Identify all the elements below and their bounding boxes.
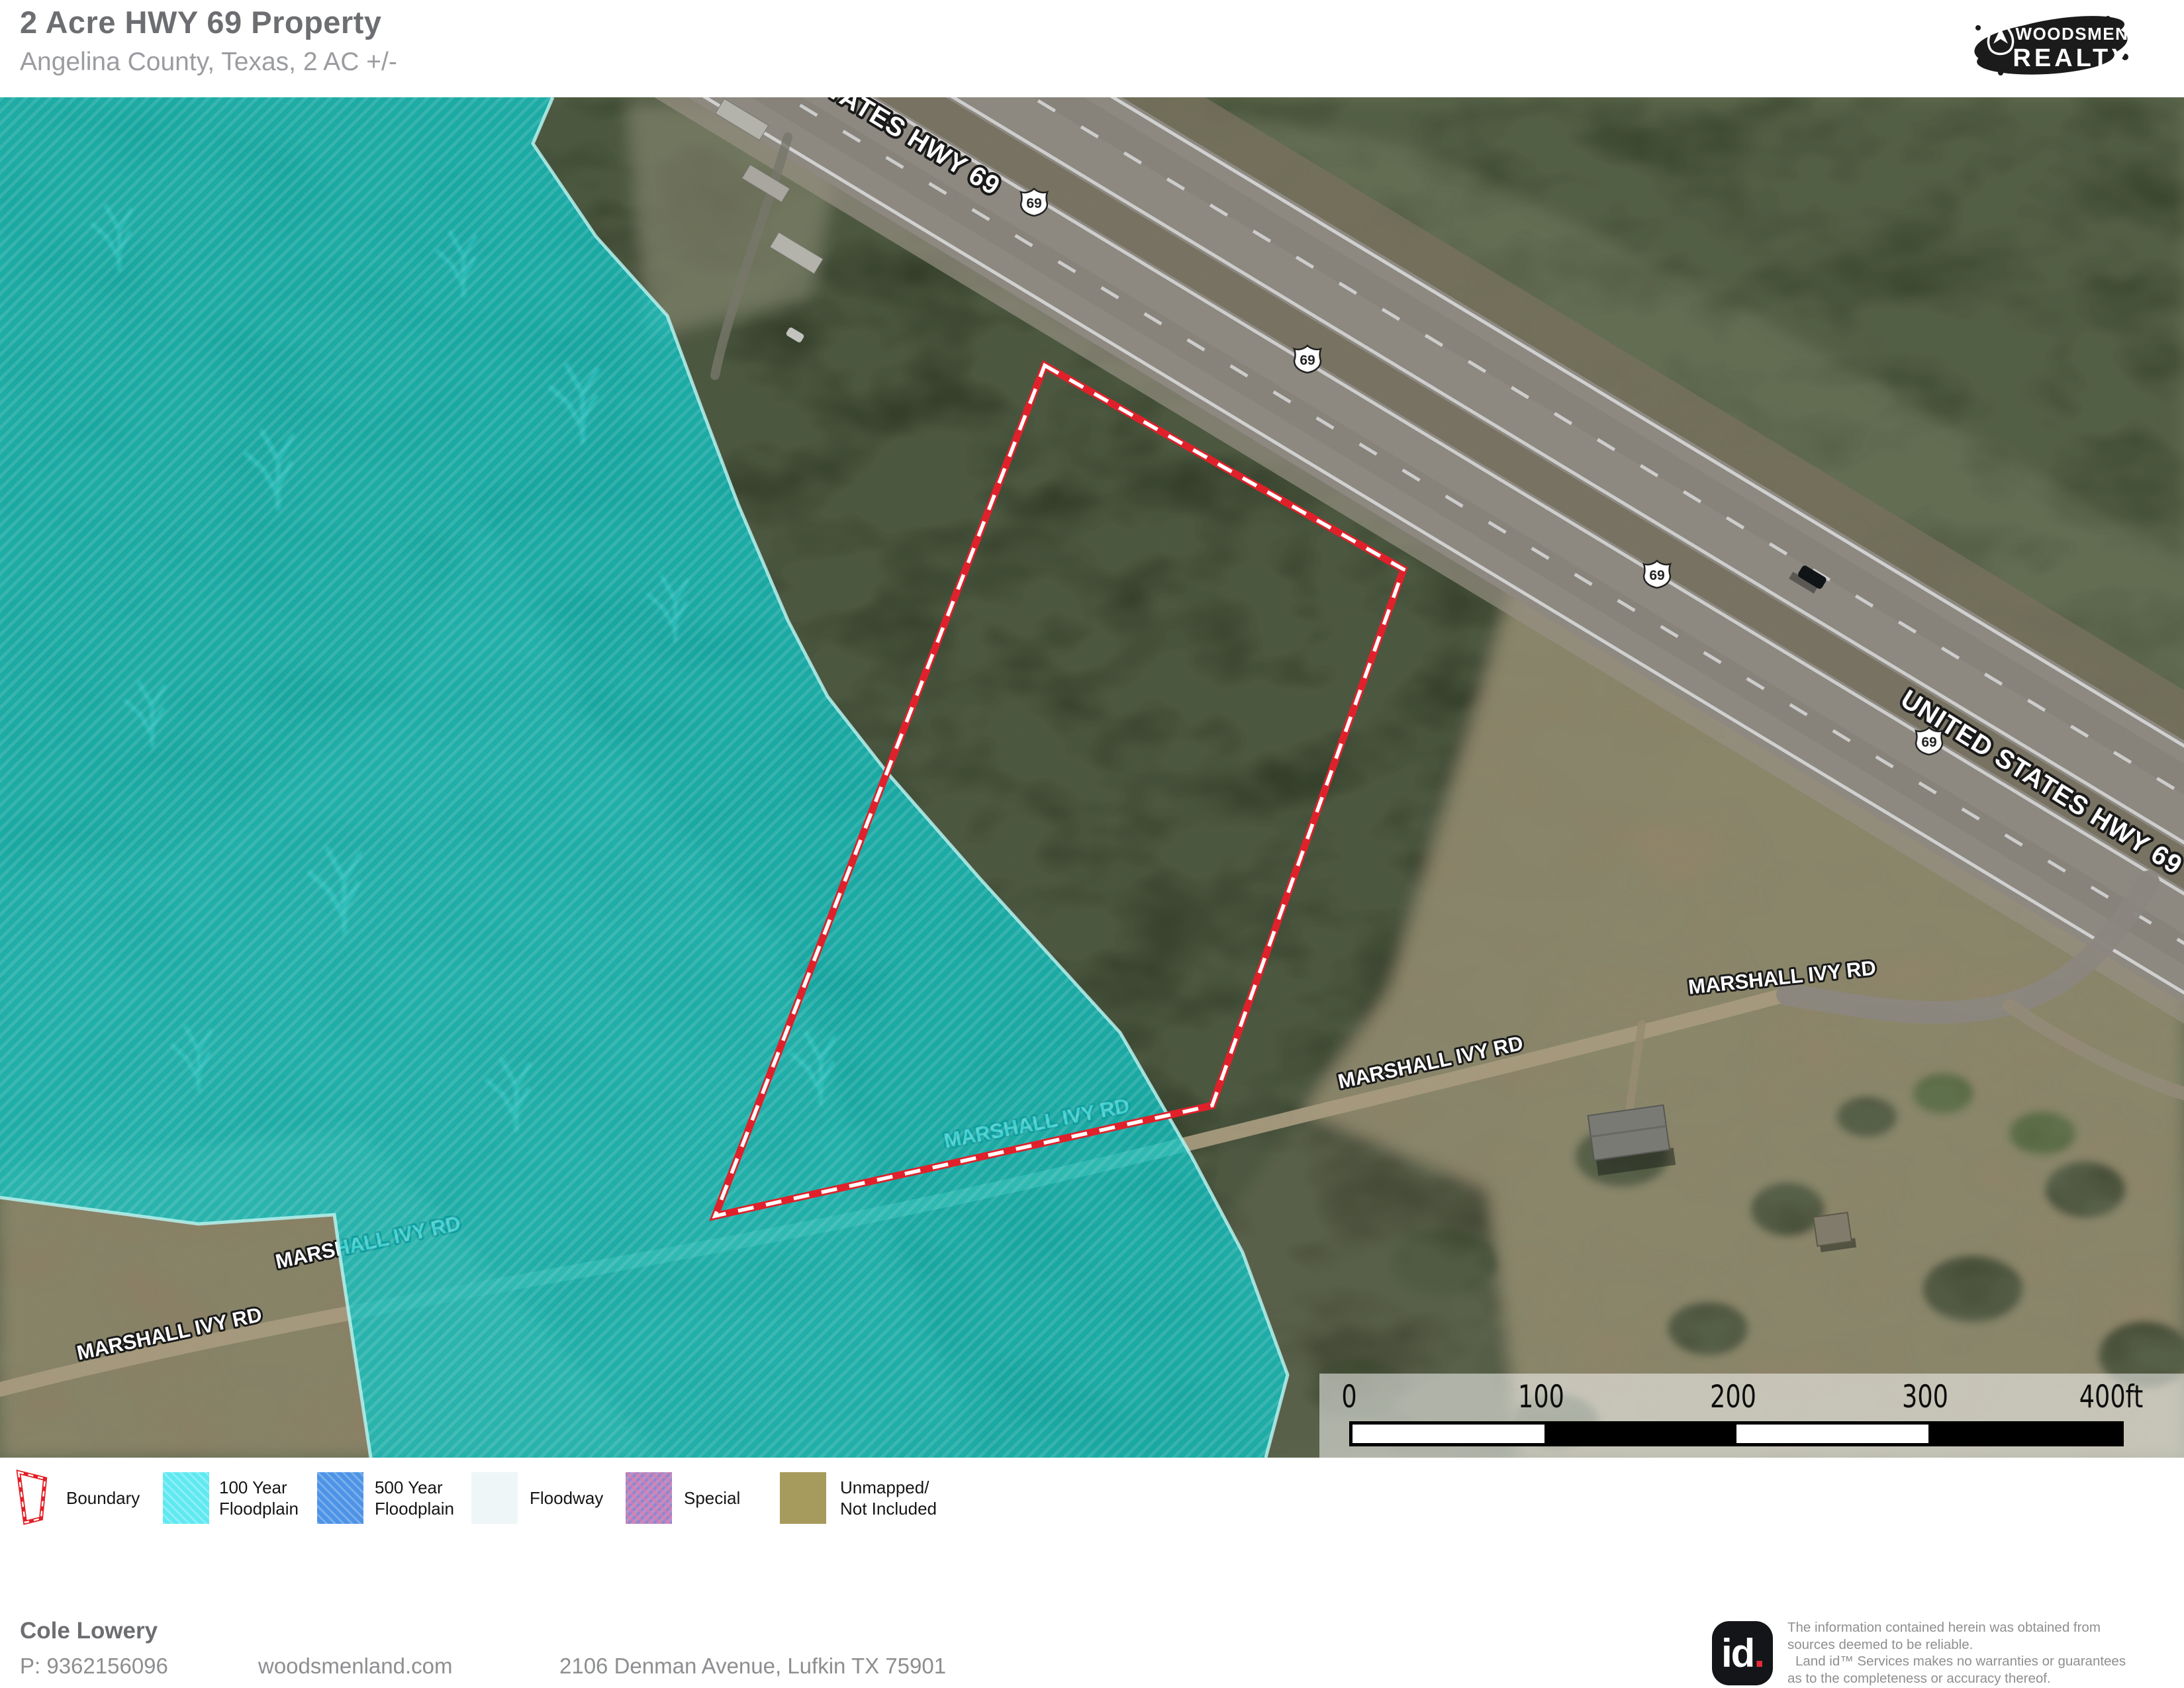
scale-bar: 0 100 200 300 400ft [1319,1374,2184,1458]
scale-tick: 300 [1902,1379,1948,1415]
scale-tick: 100 [1518,1379,1564,1415]
agent-website: woodsmenland.com [258,1654,453,1679]
legend-label: 100 Year Floodplain [219,1468,299,1528]
scale-tick: 200 [1710,1379,1756,1415]
svg-text:69: 69 [1300,353,1315,368]
scale-bar-segments [1349,1421,2124,1446]
svg-text:69: 69 [1921,735,1936,750]
agent-address: 2106 Denman Avenue, Lufkin TX 75901 [559,1654,946,1679]
svg-text:69: 69 [1026,196,1041,211]
logo-dot: . [1754,1630,1764,1676]
agent-name: Cole Lowery [20,1618,158,1644]
map-canvas[interactable]: UNITED STATES HWY 69 UNITED STATES HWY 6… [0,97,2184,1458]
route-shield-69: 69 [1916,727,1942,755]
scale-segment [1353,1425,1544,1443]
legend-swatch-floodway [471,1472,518,1524]
scale-segment [1736,1425,1928,1443]
legend-swatch-special [626,1472,672,1524]
scale-end-label: 400ft [2079,1379,2144,1415]
legend-swatch-unmapped [780,1472,826,1524]
scale-segment [1928,1425,2120,1443]
woodsmen-realty-logo: WOODSMEN REALTY [1971,5,2133,86]
disclaimer-line: The information contained herein was obt… [1787,1619,2184,1636]
boundary-icon [13,1468,52,1528]
legend-label: Boundary [66,1468,140,1528]
legend-item-boundary [13,1468,52,1531]
legend-label: Special [684,1468,740,1528]
legend: Boundary 100 Year Floodplain 500 Year Fl… [0,1468,2184,1541]
legend-swatch-500yr [317,1472,363,1524]
brand-splash-icon: WOODSMEN REALTY [1971,5,2133,86]
disclaimer-line: Land id™ Services makes no warranties or… [1787,1653,2184,1670]
aerial-map: UNITED STATES HWY 69 UNITED STATES HWY 6… [0,97,2184,1458]
brand-name-top: WOODSMEN [2016,24,2129,44]
route-shield-69: 69 [1021,189,1047,216]
legend-label: Floodway [530,1468,603,1528]
disclaimer-line: as to the completeness or accuracy there… [1787,1670,2184,1687]
page-subtitle: Angelina County, Texas, 2 AC +/- [20,48,397,77]
route-shield-69: 69 [1644,561,1670,588]
scale-segment [1544,1425,1736,1443]
land-id-logo: id. [1712,1621,1773,1685]
brand-name-bottom: REALTY [2013,44,2131,72]
legend-swatch-100yr [163,1472,209,1524]
route-shield-69: 69 [1294,346,1321,373]
scale-tick: 0 [1341,1379,1356,1415]
disclaimer-line: sources deemed to be reliable. [1787,1636,2184,1654]
disclaimer: The information contained herein was obt… [1787,1619,2184,1687]
svg-text:69: 69 [1649,568,1664,583]
agent-phone: P: 9362156096 [20,1654,168,1679]
page-title: 2 Acre HWY 69 Property [20,4,382,40]
legend-label: 500 Year Floodplain [375,1468,454,1528]
legend-label: Unmapped/ Not Included [840,1468,937,1528]
property-map-page: 2 Acre HWY 69 Property Angelina County, … [0,0,2184,1688]
